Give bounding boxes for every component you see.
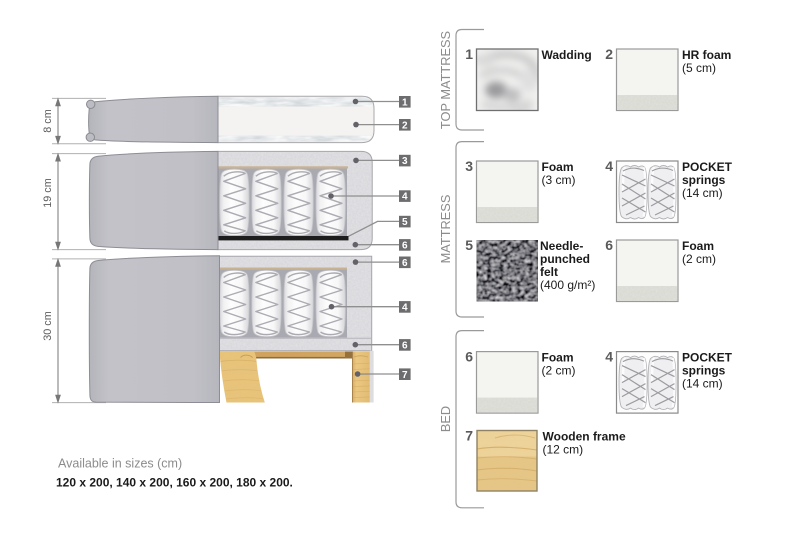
svg-text:Wadding: Wadding [542,48,592,62]
svg-text:6: 6 [605,237,613,253]
svg-text:TOP MATTRESS: TOP MATTRESS [438,31,453,129]
svg-text:(3 cm): (3 cm) [542,173,576,187]
svg-text:(2 cm): (2 cm) [542,363,576,377]
svg-text:Available in sizes (cm): Available in sizes (cm) [58,457,182,471]
svg-text:BED: BED [438,406,453,432]
svg-text:6: 6 [402,241,408,252]
svg-text:(14 cm): (14 cm) [682,376,723,390]
svg-text:5: 5 [465,237,473,253]
svg-text:2: 2 [402,120,408,131]
svg-text:springs: springs [682,173,726,187]
svg-text:2: 2 [605,46,613,62]
svg-text:7: 7 [402,370,408,381]
svg-text:(14 cm): (14 cm) [682,186,723,200]
svg-text:MATTRESS: MATTRESS [438,195,453,264]
svg-text:HR foam: HR foam [682,48,731,62]
svg-text:3: 3 [402,156,408,167]
svg-text:Foam: Foam [542,350,574,364]
svg-text:1: 1 [402,97,408,108]
svg-text:Foam: Foam [542,160,574,174]
svg-text:120 x 200, 140 x 200, 160 x 20: 120 x 200, 140 x 200, 160 x 200, 180 x 2… [56,476,293,490]
svg-text:6: 6 [402,258,408,269]
svg-text:Needle-: Needle- [540,239,583,253]
svg-text:POCKET: POCKET [682,160,733,174]
svg-text:1: 1 [465,46,473,62]
svg-text:3: 3 [465,158,473,174]
svg-text:felt: felt [540,265,558,279]
svg-text:POCKET: POCKET [682,350,733,364]
svg-text:4: 4 [605,348,613,364]
svg-text:(400 g/m²): (400 g/m²) [540,278,595,292]
svg-text:30 cm: 30 cm [42,311,54,340]
svg-text:(2 cm): (2 cm) [682,252,716,266]
svg-text:4: 4 [402,303,408,314]
svg-text:Wooden frame: Wooden frame [543,429,626,443]
svg-text:springs: springs [682,363,726,377]
svg-text:4: 4 [402,192,408,203]
svg-text:6: 6 [465,348,473,364]
svg-text:7: 7 [465,427,473,443]
svg-text:8 cm: 8 cm [42,109,54,132]
svg-text:5: 5 [402,217,408,228]
svg-text:(5 cm): (5 cm) [682,61,716,75]
svg-text:punched: punched [540,252,590,266]
svg-text:6: 6 [402,341,408,352]
svg-text:Foam: Foam [682,239,714,253]
svg-text:19 cm: 19 cm [42,178,54,207]
svg-text:4: 4 [605,158,613,174]
svg-text:(12 cm): (12 cm) [543,442,584,456]
